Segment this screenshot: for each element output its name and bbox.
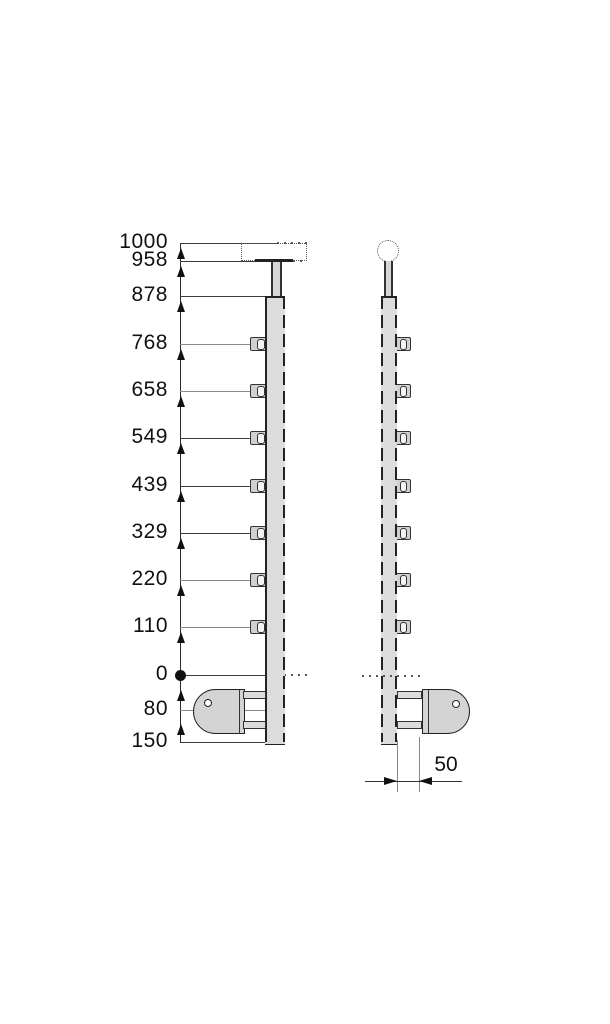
glass-clamp-side (395, 431, 411, 445)
technical-drawing-canvas: 1000958878768658549439329220110080150 50 (0, 0, 610, 1024)
clamp-slot (400, 386, 407, 397)
chain-arrowhead-icon (177, 724, 185, 735)
post-neck-side (384, 261, 393, 296)
glass-clamp-side (395, 526, 411, 540)
bracket-plate-edge-side (428, 689, 429, 734)
dimension-level-label: 220 (100, 567, 168, 591)
post-neck-front (271, 262, 282, 296)
glass-clamp-side (395, 384, 411, 398)
dimension-level-label: 878 (100, 283, 168, 307)
dimension-level-label: 110 (100, 614, 168, 638)
glass-clamp-side (395, 573, 411, 587)
clamp-slot (400, 575, 407, 586)
post-front-right-edge (283, 296, 285, 742)
dimension-arrowhead-left (384, 777, 397, 785)
clamp-slot (257, 622, 265, 633)
chain-arrowhead-icon (177, 632, 185, 643)
dimension-level-label: 80 (100, 697, 168, 721)
wall-bracket-front (193, 689, 245, 734)
chain-arrowhead-icon (177, 301, 185, 312)
width-dimension-line (365, 781, 462, 782)
wall-bracket-side (422, 689, 470, 734)
dimension-level-label: 658 (100, 378, 168, 402)
chain-arrowhead-icon (177, 266, 185, 277)
dimension-level-label: 768 (100, 331, 168, 355)
bracket-arm-upper-front (243, 691, 266, 699)
handrail-section-outline (377, 240, 399, 262)
chain-arrowhead-icon (177, 248, 185, 259)
clamp-slot (257, 433, 265, 444)
clamp-slot (257, 339, 265, 350)
extension-line-left (397, 740, 398, 792)
dimension-level-label: 958 (100, 248, 168, 272)
dimension-level-label: 329 (100, 520, 168, 544)
post-front-left-edge (265, 296, 267, 742)
bracket-screw-hole-front (204, 699, 212, 707)
dimension-level-label: 549 (100, 425, 168, 449)
bracket-arm-lower-side (397, 721, 422, 729)
chain-arrowhead-icon (177, 538, 185, 549)
bracket-arm-upper-side (397, 691, 422, 699)
clamp-slot (257, 386, 265, 397)
clamp-slot (400, 528, 407, 539)
clamp-slot (400, 622, 407, 633)
dimension-arrowhead-right (419, 777, 432, 785)
dimension-level-line-dotted (284, 674, 307, 676)
glass-clamp-side (395, 620, 411, 634)
chain-arrowhead-icon (177, 396, 185, 407)
clamp-slot (400, 433, 407, 444)
clamp-slot (400, 481, 407, 492)
chain-arrowhead-icon (177, 690, 185, 701)
clamp-slot (257, 575, 265, 586)
bracket-plate-edge-front (239, 689, 240, 734)
floor-reference-dotted-line (362, 675, 422, 677)
chain-arrowhead-icon (177, 349, 185, 360)
chain-arrowhead-icon (177, 585, 185, 596)
bracket-screw-hole-side (452, 700, 460, 708)
bracket-arm-lower-front (243, 721, 266, 729)
dimension-level-label: 150 (100, 729, 168, 753)
dimension-level-label: 0 (100, 662, 168, 686)
width-dimension-label: 50 (423, 753, 469, 777)
glass-clamp-side (395, 337, 411, 351)
clamp-slot (257, 481, 265, 492)
chain-arrowhead-icon (177, 491, 185, 502)
post-body-front (265, 296, 285, 745)
clamp-slot (257, 528, 265, 539)
dimension-level-label: 439 (100, 473, 168, 497)
zero-reference-dot (175, 670, 186, 681)
dimension-level-line (180, 261, 255, 262)
clamp-slot (400, 339, 407, 350)
chain-arrowhead-icon (177, 443, 185, 454)
glass-clamp-side (395, 479, 411, 493)
